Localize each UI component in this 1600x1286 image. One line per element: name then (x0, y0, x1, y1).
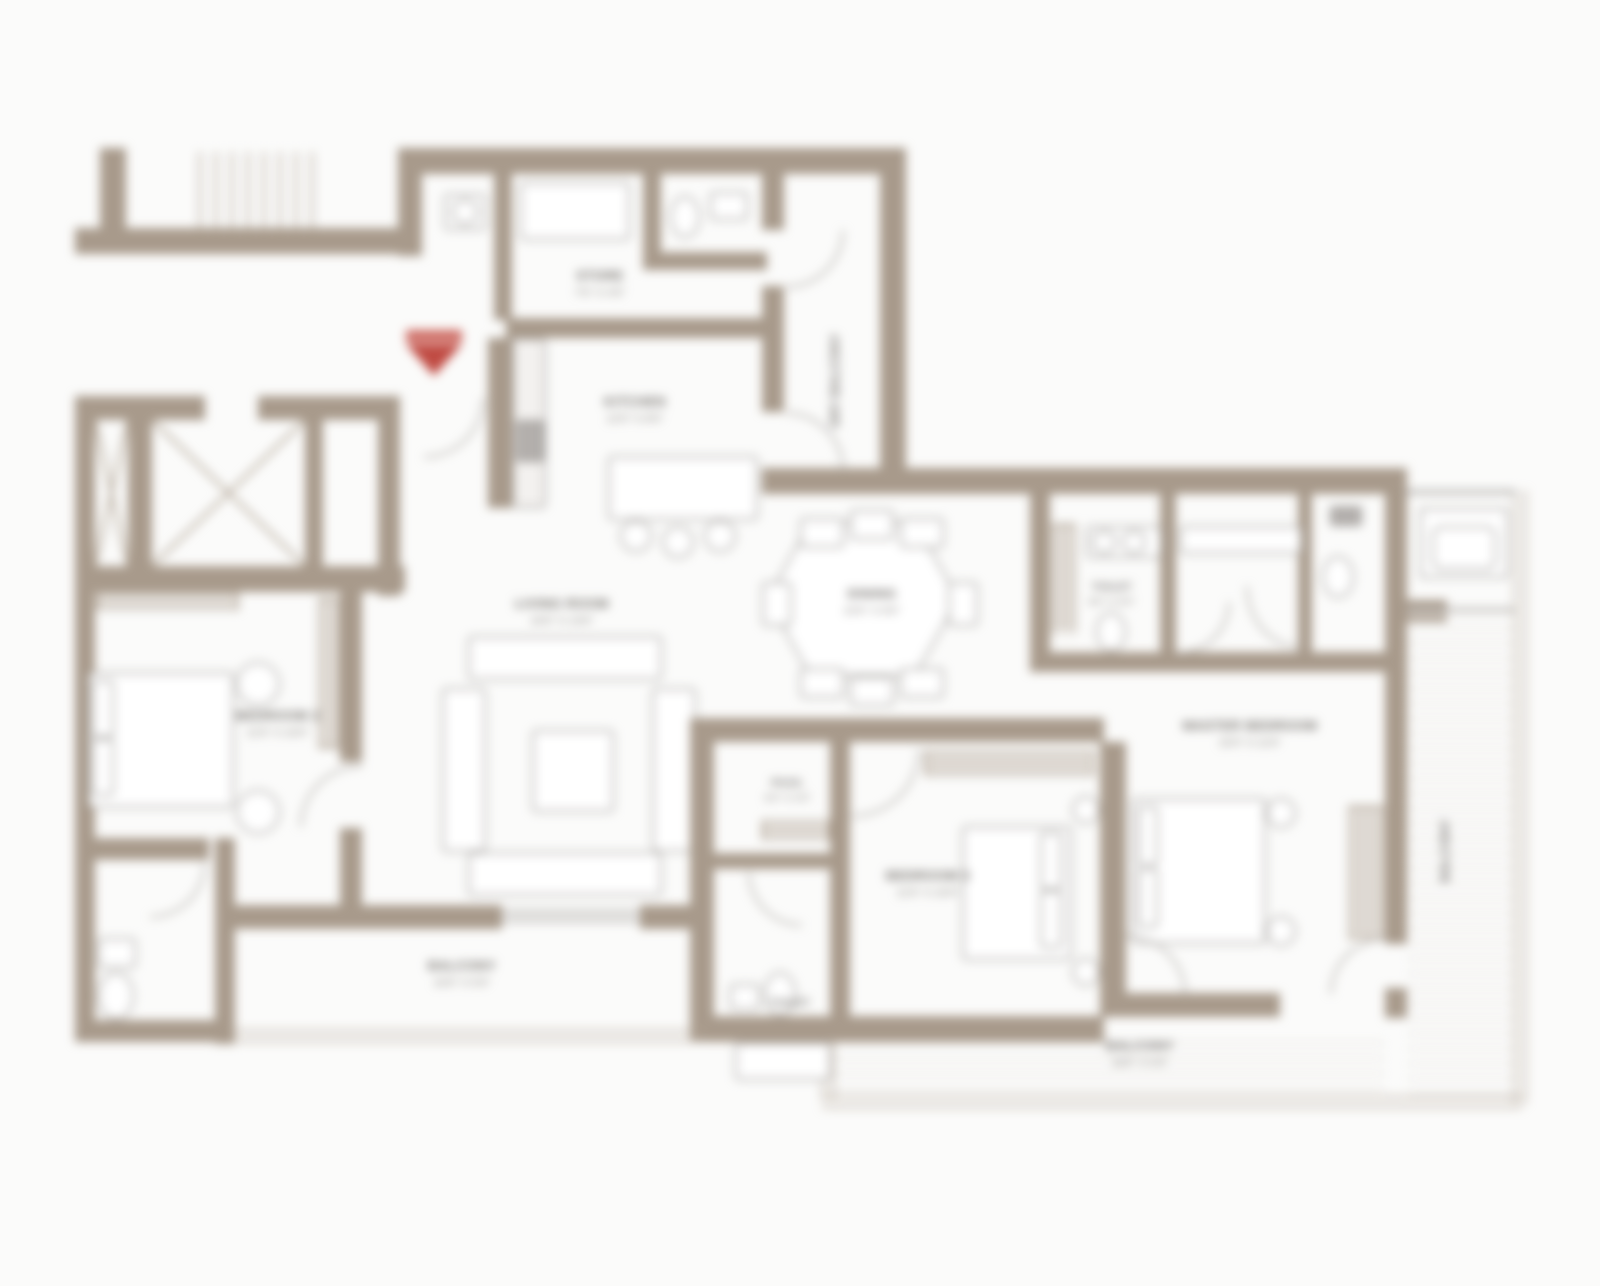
wall (75, 228, 421, 254)
room-name: STORE (520, 266, 680, 286)
wall (128, 420, 152, 568)
shower-arc (1246, 586, 1300, 648)
wall (340, 828, 362, 906)
wc (1096, 612, 1126, 652)
room-name: PASS. (728, 776, 848, 792)
room-dim: 12'0" X 8'0" (555, 412, 715, 428)
room-dim: 18'6" X 5'0" (1060, 1056, 1220, 1072)
sofa (442, 688, 486, 852)
room-dim: 11'6" X 10'0" (848, 886, 1008, 902)
room-label-bedroom2: BEDROOM 2 11'6" X 10'0" (198, 706, 358, 741)
room-label-balcony-right: BALCONY 18'6" X 5'0" (1060, 1036, 1220, 1071)
wall (305, 420, 323, 568)
room-name: BEDROOM 3 (848, 866, 1008, 886)
wall (506, 318, 772, 338)
wall (1385, 988, 1407, 1018)
balcony-edge (1406, 490, 1516, 494)
stool (662, 526, 694, 558)
door-arc (1178, 602, 1230, 654)
floor-plan-canvas: STORE 7'6" X 4'6" KITCHEN 12'0" X 8'0" D… (0, 0, 1600, 1286)
wall (75, 566, 405, 592)
side-table (1266, 916, 1296, 946)
room-label-store: STORE 7'6" X 4'6" (520, 266, 680, 301)
wc (1322, 556, 1354, 598)
wall (75, 396, 205, 420)
wall (398, 174, 422, 256)
cistern (1330, 506, 1362, 526)
lift-shaft (152, 420, 305, 566)
wall (75, 838, 209, 860)
washbasin (710, 192, 748, 220)
room-label-kitchen: KITCHEN 12'0" X 8'0" (555, 392, 715, 427)
wall (398, 148, 906, 174)
room-label-toilet-master: TOILET 8'0" X 5'0" (1052, 580, 1172, 610)
sliding-door (502, 910, 640, 913)
chair (850, 510, 894, 540)
room-name: DINING (792, 584, 952, 604)
room-dim: 15'6" X 5'0" (382, 976, 542, 992)
wall (1298, 494, 1312, 652)
room-label-dining: DINING 10'6" X 8'6" (792, 584, 952, 619)
room-name: LIVING ROOM (482, 594, 642, 614)
room-dim: 10'6" X 8'6" (792, 604, 952, 620)
lift-shaft (95, 420, 128, 566)
room-name: BALCONY (382, 956, 542, 976)
chair (850, 676, 894, 706)
balcony-edge (1406, 608, 1514, 611)
wall (690, 1016, 1104, 1042)
side-table (236, 790, 280, 834)
wall (1100, 742, 1126, 997)
room-dim: 8'0" X 5'0" (1052, 596, 1172, 610)
shelf (762, 820, 830, 840)
pillow (92, 738, 114, 796)
wc (670, 196, 700, 238)
pillow (92, 680, 114, 738)
wall (690, 742, 714, 1042)
wall (1385, 622, 1407, 698)
room-dim: 16'6" X 13'6" (482, 614, 642, 630)
washbasin-bowl (1092, 530, 1116, 554)
pillow (1138, 868, 1158, 928)
side-table (1072, 796, 1100, 824)
sofa (468, 636, 662, 680)
planter (1432, 526, 1496, 570)
door-arc (748, 872, 802, 926)
balcony-floor (1408, 612, 1514, 1098)
room-name: KITCHEN (555, 392, 715, 412)
room-name: BEDROOM 2 (198, 706, 358, 726)
chair (800, 668, 844, 698)
wall (1160, 494, 1176, 652)
pillow (1040, 832, 1062, 890)
pillow (1040, 890, 1062, 948)
pillow (1138, 806, 1158, 866)
wall (1385, 468, 1407, 618)
room-label-balcony-left: BALCONY 15'6" X 5'0" (382, 956, 542, 991)
room-label-dry-balcony: DRY BALCONY (828, 300, 842, 460)
door-arc (852, 749, 920, 817)
wall (488, 338, 512, 508)
chair (948, 582, 978, 626)
entry-arrow-icon (406, 330, 462, 342)
balcony-railing (232, 1030, 706, 1042)
washbasin-bowl (452, 199, 478, 225)
side-table (236, 662, 280, 706)
store-counter (520, 182, 630, 240)
wall (712, 853, 830, 869)
room-name: BALCONY (1060, 1036, 1220, 1056)
chair (900, 668, 944, 698)
door-arc (786, 230, 844, 288)
wall (1385, 698, 1407, 944)
room-label-balcony-side: BALCONY (1438, 775, 1452, 925)
wall (230, 905, 502, 929)
room-label-bedroom3: BEDROOM 3 11'6" X 10'0" (848, 866, 1008, 901)
side-table (1266, 798, 1296, 828)
door-arc (1126, 935, 1186, 995)
wall (1100, 993, 1280, 1017)
wall (762, 468, 1406, 494)
door-arc (1330, 938, 1386, 994)
wardrobe (1348, 806, 1384, 940)
wall (762, 174, 784, 230)
sofa (468, 852, 662, 896)
room-label-passage: PASS. 6'0" X 4'0" (728, 776, 848, 806)
staircase (198, 152, 320, 228)
entry-door-arc (424, 398, 484, 458)
washbasin-bowl (1122, 530, 1146, 554)
wall (494, 174, 512, 320)
side-table (1072, 958, 1100, 986)
wall (1030, 494, 1050, 654)
room-dim: 15'0" X 11'6" (1150, 736, 1350, 752)
kitchen-island (608, 456, 758, 520)
window (97, 592, 239, 610)
room-label-living: LIVING ROOM 16'6" X 13'6" (482, 594, 642, 629)
room-dim: 6'0" X 4'0" (728, 792, 848, 806)
stool (704, 520, 736, 552)
balcony-railing (1514, 490, 1526, 1104)
wall (215, 838, 235, 1044)
coffee-table (532, 730, 614, 812)
wall (75, 1020, 235, 1042)
room-label-master: MASTER BEDROOM 15'0" X 11'6" (1150, 716, 1350, 751)
room-label-toilet-common: TOILET (730, 996, 850, 1012)
washbasin (98, 938, 136, 968)
wall (762, 286, 784, 412)
sliding-door (502, 919, 640, 922)
shower (1052, 524, 1076, 634)
duct (735, 1042, 831, 1080)
wall (880, 174, 906, 494)
wardrobe (925, 750, 1095, 776)
kitchen-sink (516, 420, 544, 462)
door-arc (150, 862, 206, 918)
wall (1030, 652, 1386, 672)
stool (620, 520, 652, 552)
room-name: MASTER BEDROOM (1150, 716, 1350, 736)
wc (98, 972, 134, 1020)
room-name: TOILET (1052, 580, 1172, 596)
door-arc (300, 765, 362, 827)
wall (690, 718, 1104, 742)
vanity-counter (1180, 526, 1302, 554)
chair (900, 518, 944, 548)
wall (75, 860, 95, 1042)
room-dim: 7'6" X 4'6" (520, 286, 680, 302)
chair (800, 518, 844, 548)
floor-plan: STORE 7'6" X 4'6" KITCHEN 12'0" X 8'0" D… (0, 0, 1600, 1286)
entry-arrow-icon (406, 344, 462, 376)
room-dim: 11'6" X 10'0" (198, 726, 358, 742)
chair (762, 582, 792, 626)
